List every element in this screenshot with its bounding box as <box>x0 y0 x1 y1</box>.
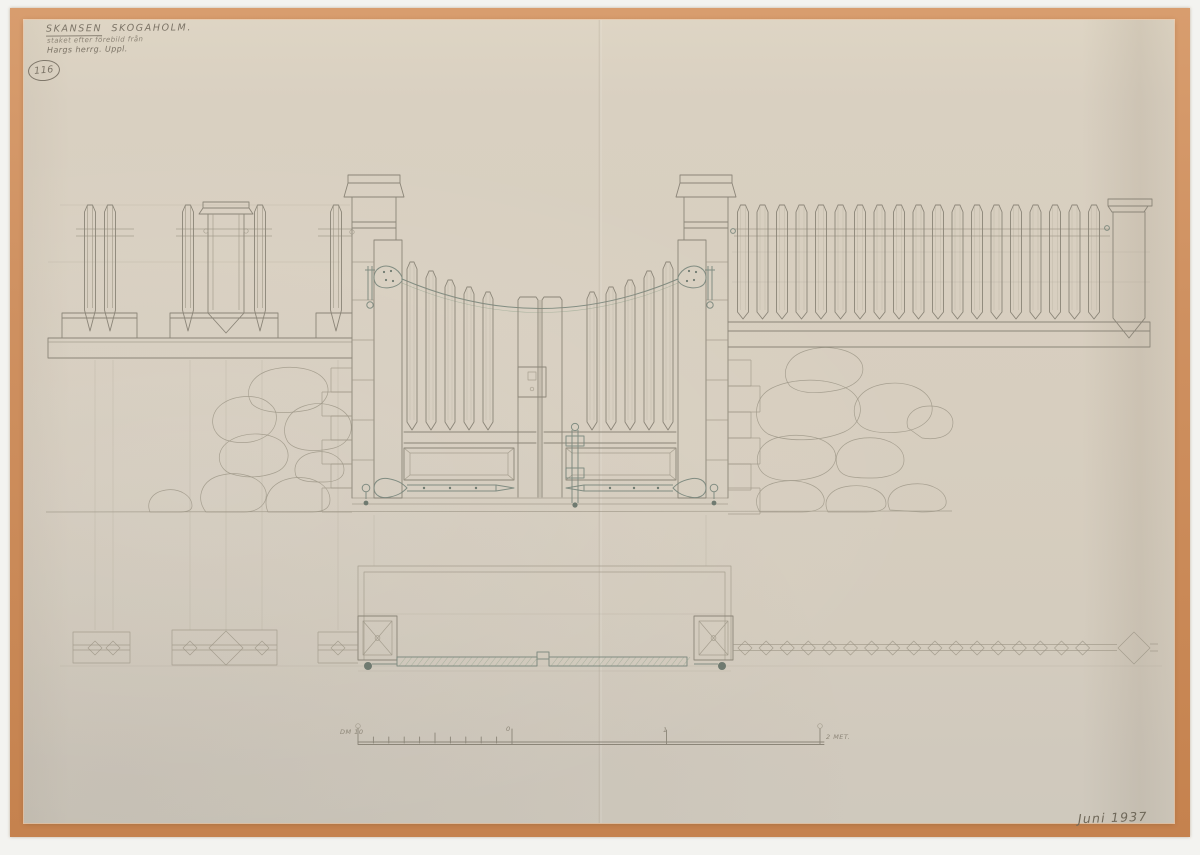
rock-pile-right <box>756 348 952 512</box>
scale-one-label: 1 <box>663 726 668 734</box>
title-line: SKANSEN SKOGAHOLM. <box>46 22 192 34</box>
scale-right-label: 2 MET. <box>826 733 850 741</box>
scale-left-label: DM 10 <box>340 728 363 736</box>
scanned-drawing-page: { "annotations": { "title_word1": "SKANS… <box>0 0 1200 855</box>
ground-bands <box>48 322 1150 504</box>
title-word-skogaholm: SKOGAHOLM. <box>111 22 192 34</box>
plan-view <box>73 515 1158 670</box>
rock-pile-left <box>149 367 351 512</box>
scale-zero-label: 0 <box>506 725 511 733</box>
gate-leaves-elevation <box>362 262 718 508</box>
masonry-left <box>322 368 352 512</box>
subtitle-line-1: staket efter förebild från <box>47 35 143 45</box>
masonry-right <box>728 360 760 514</box>
date-annotation: Juni 1937 <box>1078 809 1148 826</box>
right-fence-elevation <box>731 199 1152 338</box>
construction-guide-lines <box>46 205 1162 671</box>
subtitle-line-2: Hargs herrg. Uppl. <box>47 44 128 54</box>
scale-bar: DM 10 0 1 2 MET. <box>340 724 850 745</box>
drawing-svg: DM 10 0 1 2 MET. <box>0 0 1200 855</box>
fence-detail-elevation-left <box>62 202 354 338</box>
title-word-skansen: SKANSEN <box>46 23 102 36</box>
